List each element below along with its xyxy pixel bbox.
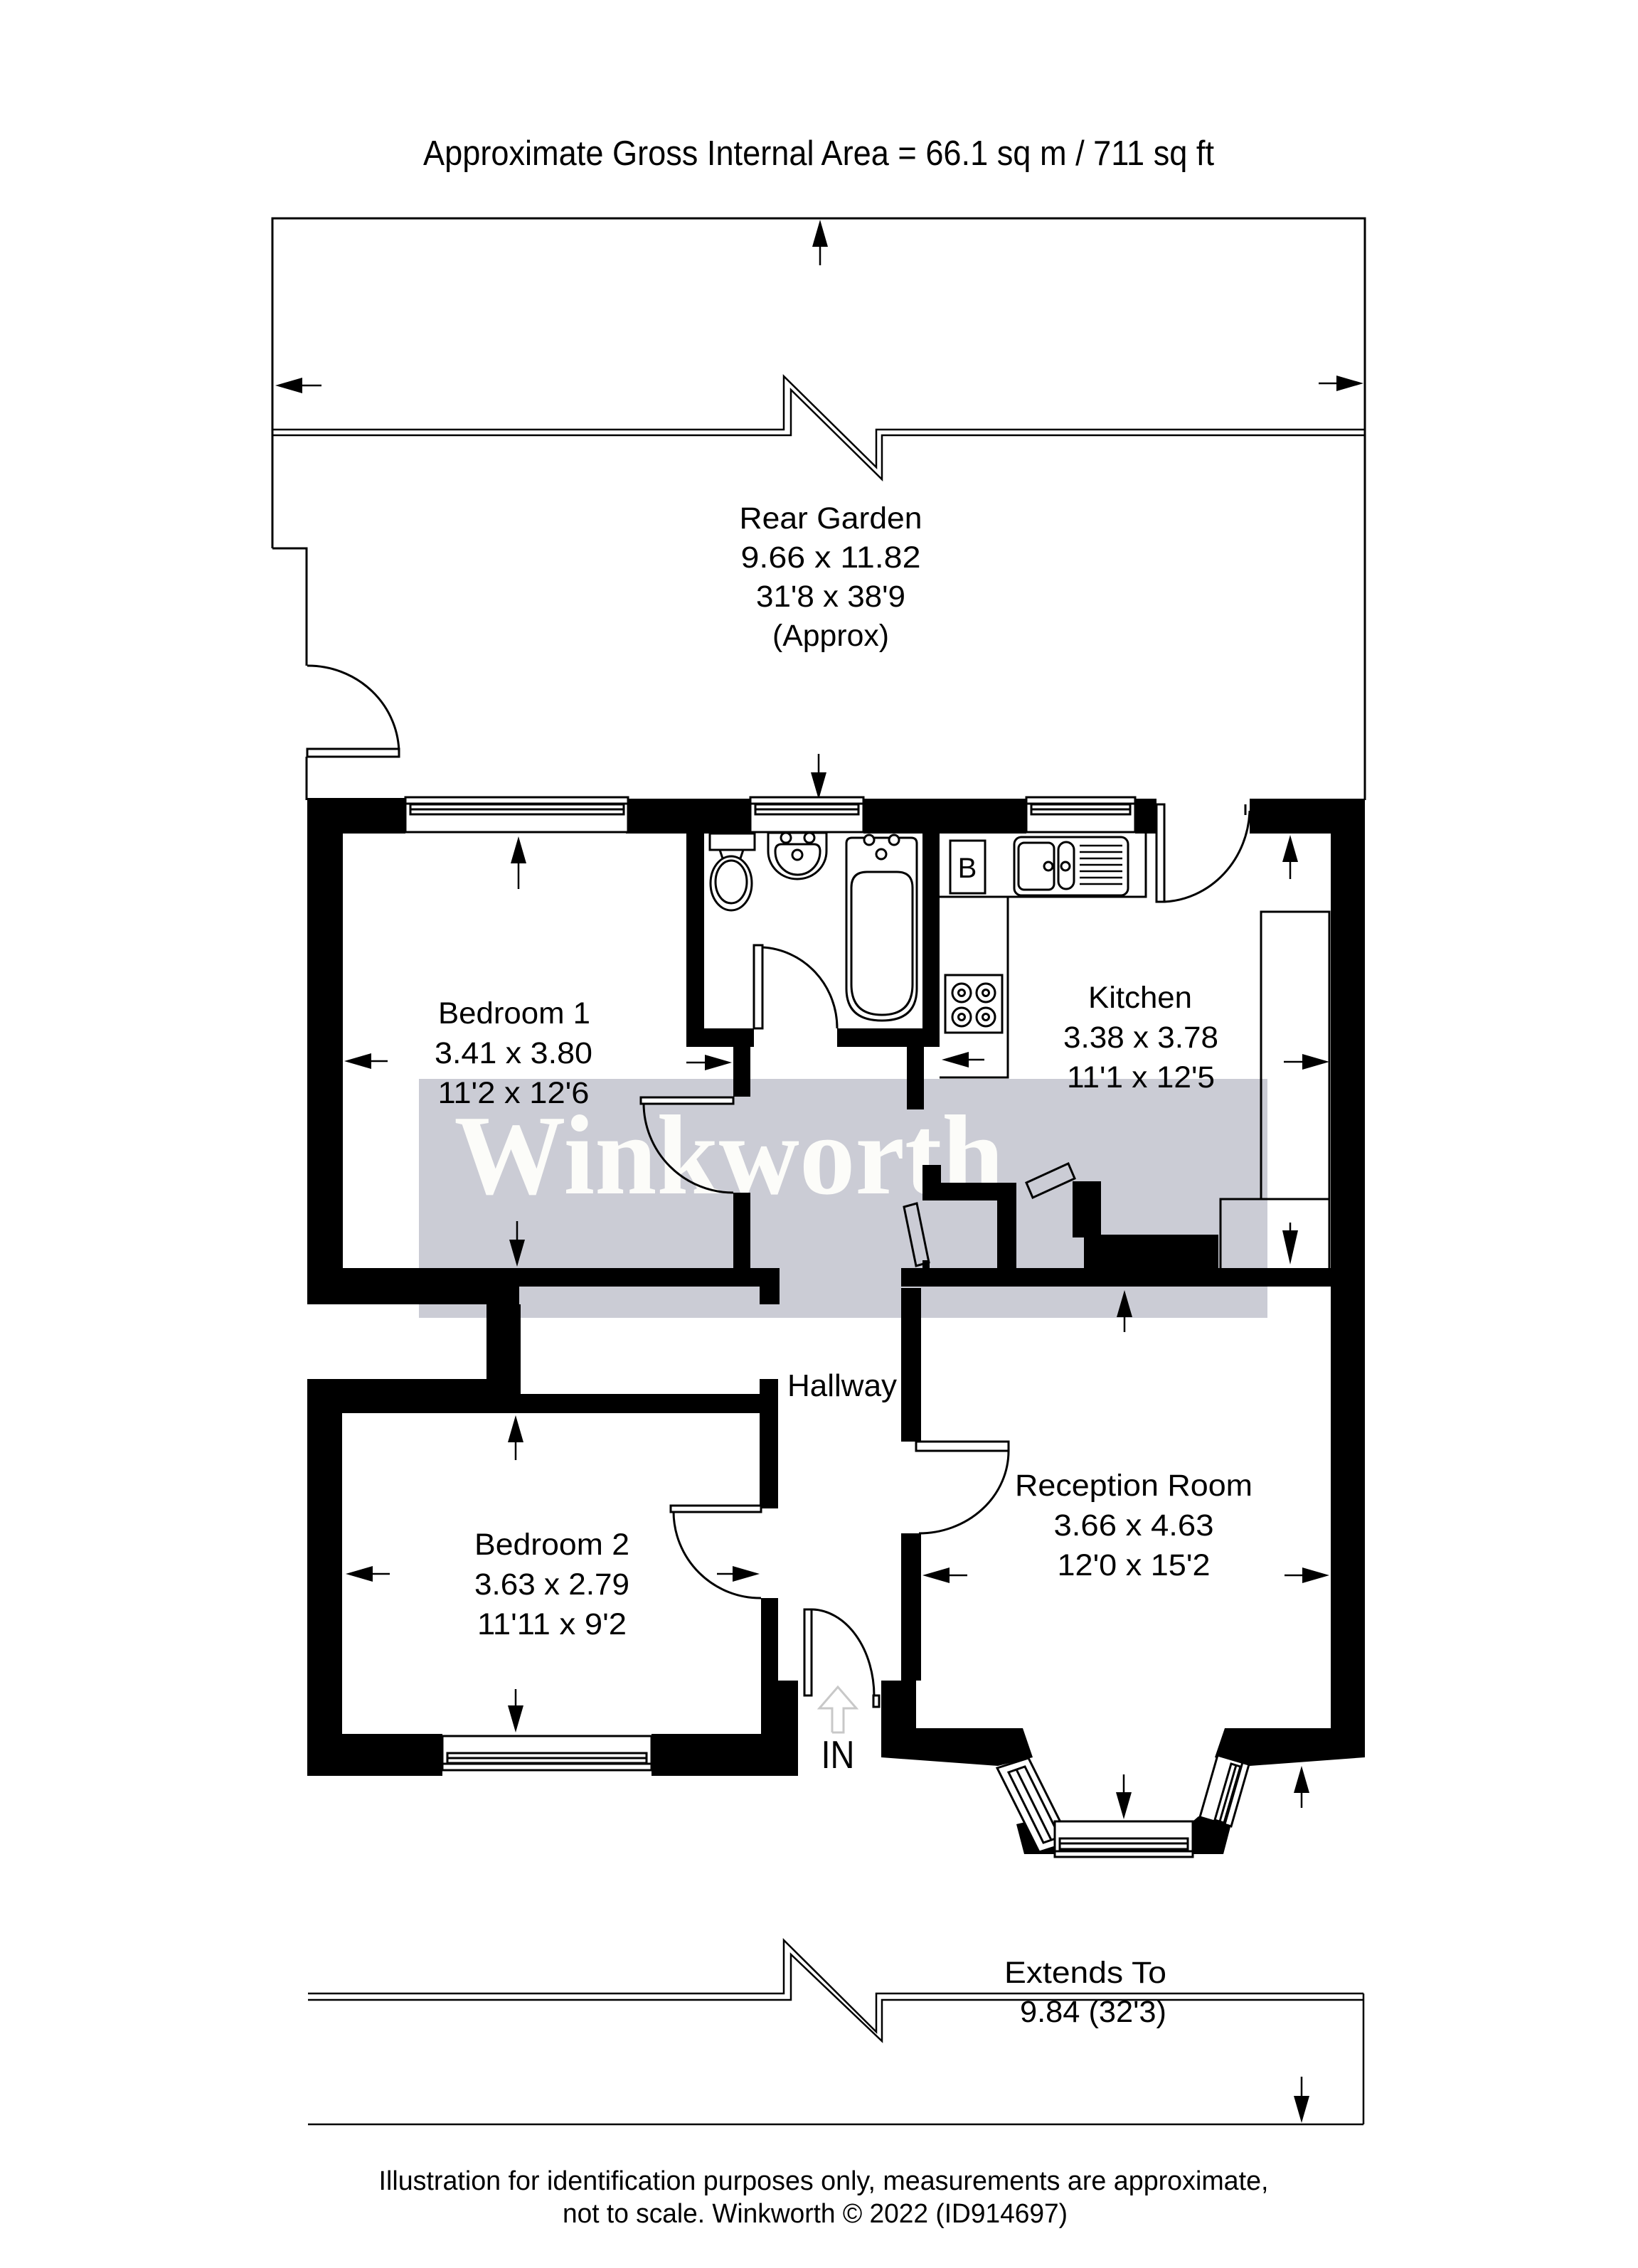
svg-text:3.66 x 4.63: 3.66 x 4.63 — [1054, 1508, 1214, 1543]
svg-text:Rear Garden: Rear Garden — [740, 501, 922, 536]
svg-text:(Approx): (Approx) — [772, 619, 889, 653]
svg-text:Approximate Gross Internal Are: Approximate Gross Internal Area = 66.1 s… — [423, 134, 1214, 173]
svg-text:Winkworth: Winkworth — [454, 1092, 1004, 1218]
svg-text:9.66 x 11.82: 9.66 x 11.82 — [741, 541, 921, 575]
svg-text:Reception Room: Reception Room — [1015, 1469, 1253, 1503]
svg-text:Kitchen: Kitchen — [1088, 981, 1192, 1015]
svg-text:11'2 x 12'6: 11'2 x 12'6 — [438, 1076, 590, 1110]
svg-text:Illustration for identificatio: Illustration for identification purposes… — [379, 2166, 1269, 2196]
svg-text:12'0 x 15'2: 12'0 x 15'2 — [1058, 1548, 1211, 1582]
svg-text:Hallway: Hallway — [787, 1368, 897, 1403]
svg-text:3.38 x 3.78: 3.38 x 3.78 — [1063, 1021, 1218, 1055]
svg-text:11'1 x 12'5: 11'1 x 12'5 — [1067, 1060, 1215, 1095]
svg-text:9.84 (32'3): 9.84 (32'3) — [1020, 1995, 1166, 2029]
svg-text:Bedroom 2: Bedroom 2 — [474, 1528, 629, 1562]
svg-text:Extends To: Extends To — [1004, 1956, 1166, 1990]
svg-text:IN: IN — [821, 1732, 855, 1777]
svg-text:B: B — [958, 853, 977, 884]
svg-text:3.41 x 3.80: 3.41 x 3.80 — [435, 1036, 592, 1070]
svg-text:31'8 x 38'9: 31'8 x 38'9 — [756, 580, 905, 614]
svg-text:3.63 x 2.79: 3.63 x 2.79 — [474, 1567, 629, 1602]
svg-text:not to scale. Winkworth © 2022: not to scale. Winkworth © 2022 (ID914697… — [563, 2199, 1068, 2229]
svg-text:11'11 x 9'2: 11'11 x 9'2 — [477, 1607, 627, 1641]
svg-text:Bedroom 1: Bedroom 1 — [438, 996, 590, 1031]
